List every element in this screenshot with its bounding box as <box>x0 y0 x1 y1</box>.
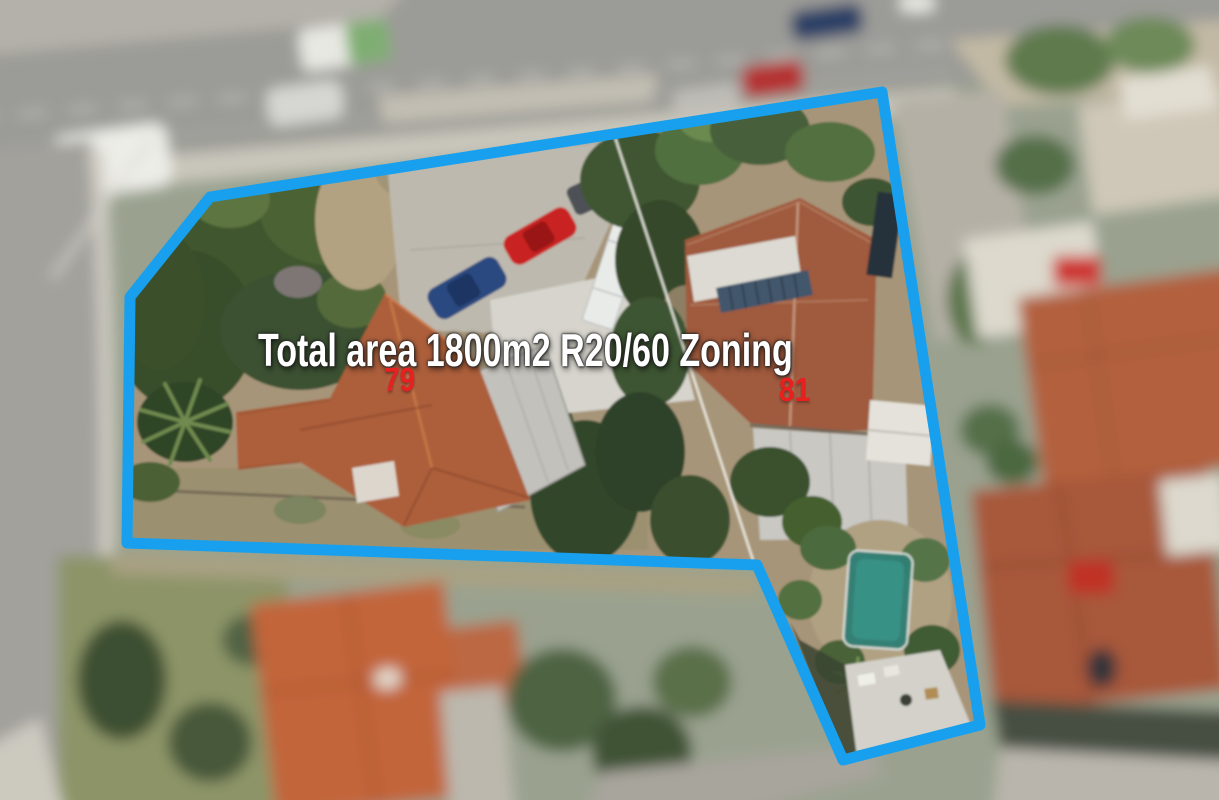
lot-number-81: 81 <box>779 373 810 406</box>
aerial-photo-listing: Total area 1800m2 R20/60 Zoning 79 81 <box>0 0 1219 800</box>
total-area-label: Total area 1800m2 R20/60 Zoning <box>258 327 793 373</box>
lot-number-79: 79 <box>384 363 415 396</box>
bottom-right-road <box>992 700 1219 800</box>
neighbour-house-right-lower <box>971 440 1219 714</box>
swimming-pool <box>843 550 914 650</box>
aerial-photo <box>0 0 1219 800</box>
